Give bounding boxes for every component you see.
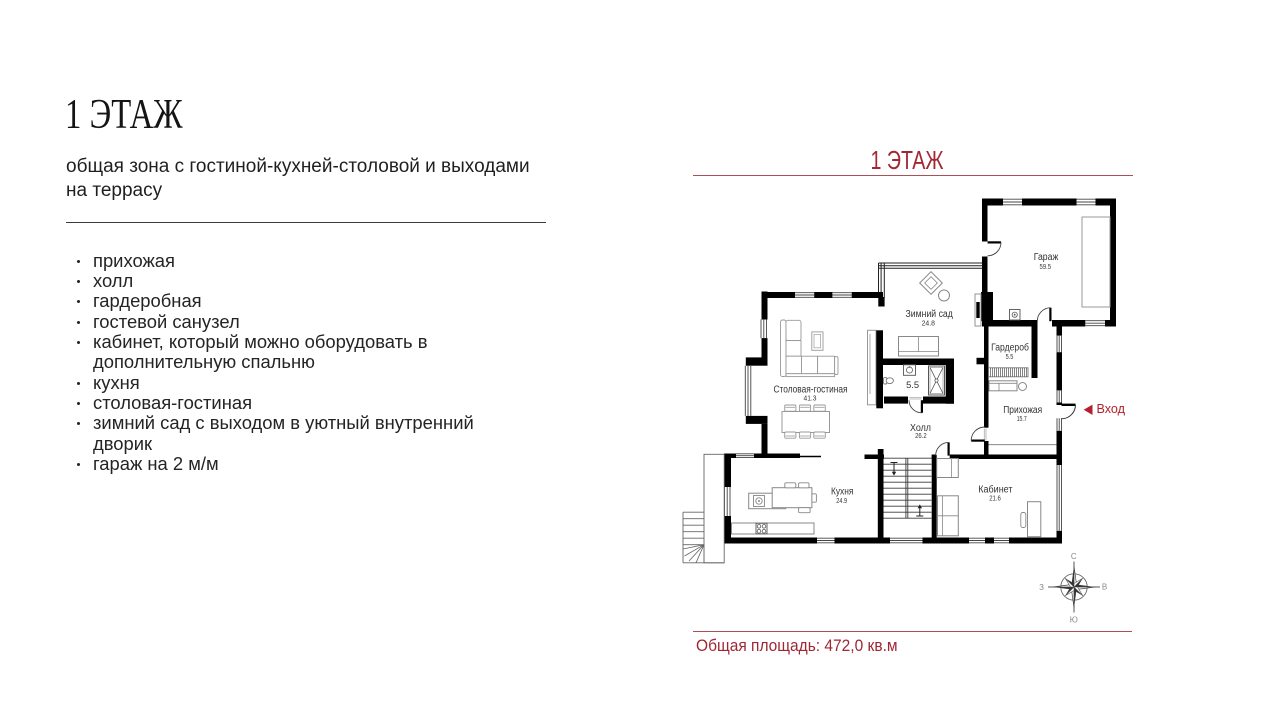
svg-text:59.5: 59.5 — [1040, 262, 1052, 271]
svg-text:24.9: 24.9 — [836, 496, 847, 505]
svg-text:5.5: 5.5 — [1006, 352, 1014, 361]
svg-text:15.7: 15.7 — [1017, 414, 1027, 423]
svg-text:5.5: 5.5 — [906, 380, 919, 391]
svg-text:В: В — [1102, 583, 1107, 592]
svg-text:24.8: 24.8 — [922, 319, 935, 328]
svg-text:21.6: 21.6 — [989, 494, 1001, 503]
svg-text:С: С — [1071, 552, 1077, 561]
svg-text:З: З — [1039, 583, 1044, 592]
svg-text:41.3: 41.3 — [804, 394, 817, 403]
svg-text:26.2: 26.2 — [915, 431, 927, 440]
svg-text:Вход: Вход — [1097, 401, 1126, 416]
svg-text:Ю: Ю — [1070, 616, 1078, 625]
